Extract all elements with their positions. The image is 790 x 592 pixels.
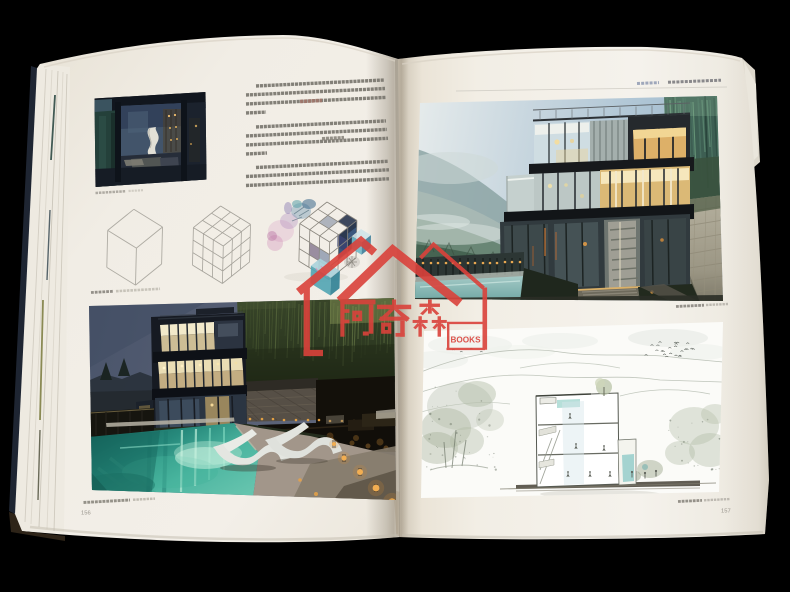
svg-text:BOOKS: BOOKS	[451, 336, 482, 345]
svg-text:157: 157	[721, 509, 731, 515]
svg-text:156: 156	[81, 511, 91, 517]
